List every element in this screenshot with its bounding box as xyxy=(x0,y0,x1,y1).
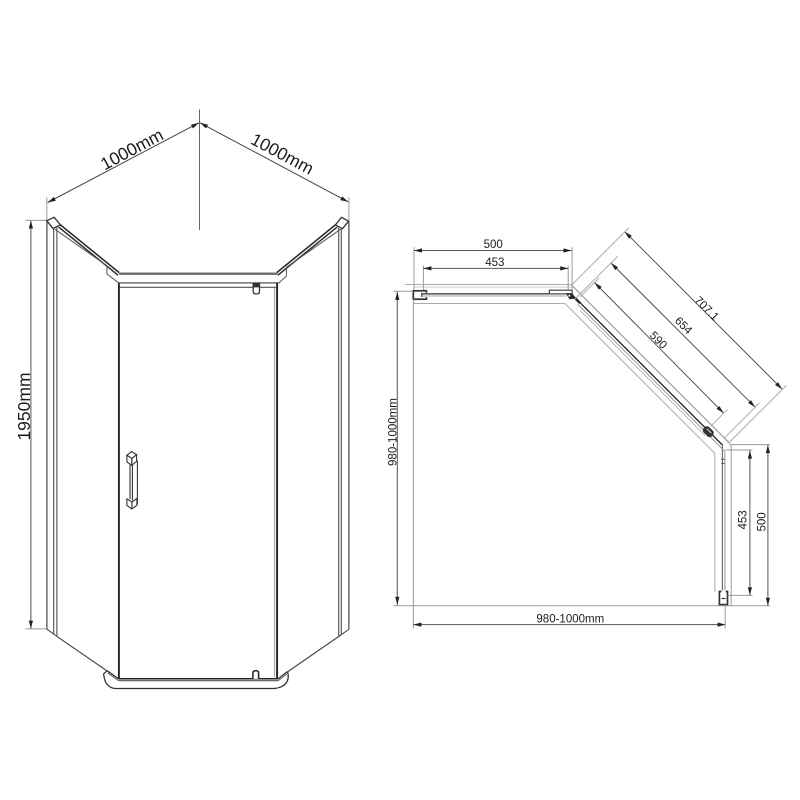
svg-text:453: 453 xyxy=(485,257,504,269)
svg-text:500: 500 xyxy=(484,239,503,251)
svg-text:980-1000mm: 980-1000mm xyxy=(536,614,604,626)
svg-text:1950mm: 1950mm xyxy=(14,372,34,440)
svg-text:980-1000mm: 980-1000mm xyxy=(387,398,399,466)
svg-text:453: 453 xyxy=(738,510,750,529)
svg-text:500: 500 xyxy=(757,512,769,531)
